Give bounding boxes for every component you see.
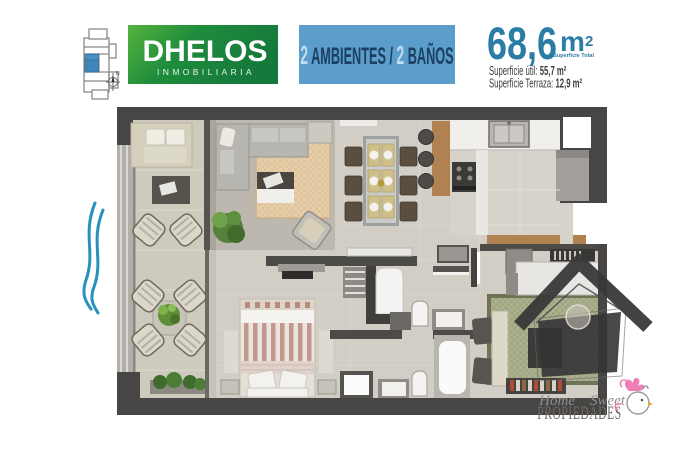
svg-text:INMOBILIARIA: INMOBILIARIA — [157, 67, 255, 77]
svg-text:DHELOS: DHELOS — [142, 35, 267, 68]
svg-text:Superficie Terraza: 12,9 m²: Superficie Terraza: 12,9 m² — [489, 78, 583, 91]
svg-text:68,6: 68,6 — [487, 18, 557, 69]
svg-text:2: 2 — [585, 33, 593, 50]
svg-text:PROPIEDADES: PROPIEDADES — [537, 403, 621, 423]
svg-text:Superficie útil: 55,7 m²: Superficie útil: 55,7 m² — [489, 65, 567, 78]
svg-text:Superficie Total: Superficie Total — [553, 53, 594, 59]
svg-text:N: N — [116, 71, 120, 77]
svg-text:2 AMBIENTES / 2 BAÑOS: 2 AMBIENTES / 2 BAÑOS — [300, 42, 453, 71]
